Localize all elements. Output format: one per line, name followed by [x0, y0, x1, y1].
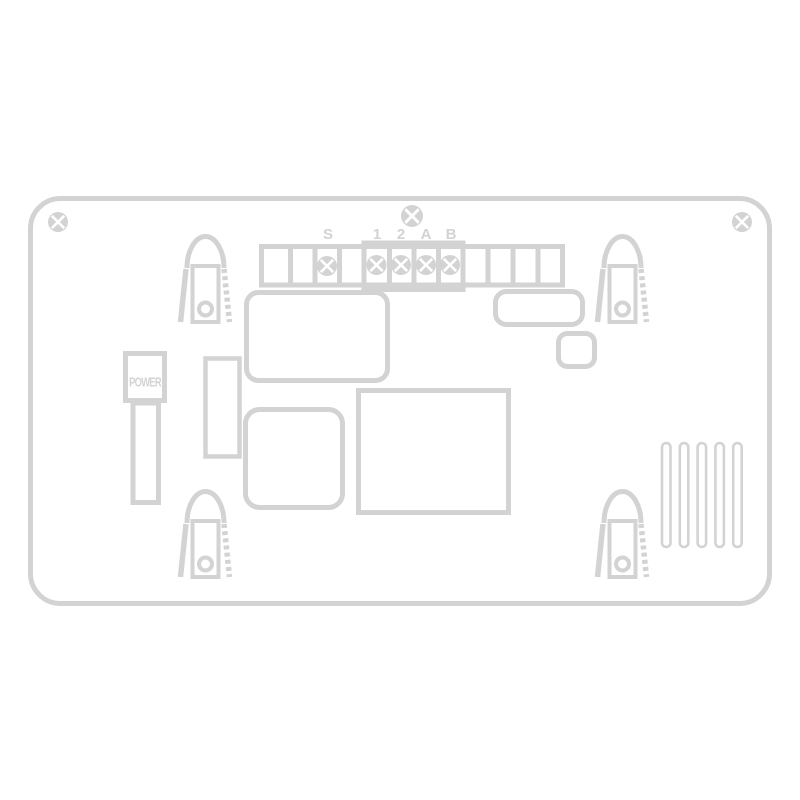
- cable-clip-top-left: [181, 237, 230, 323]
- terminal-label-2: 2: [397, 226, 405, 243]
- component-box-main-module: [359, 391, 509, 513]
- backplate-diagram: S 1 2 A B POWER: [0, 0, 800, 800]
- component-box-small-bottom: [246, 410, 343, 508]
- cable-clip-bottom-left: [181, 492, 230, 578]
- component-box-large-top: [247, 293, 388, 381]
- terminal-label-b: B: [446, 226, 457, 243]
- power-label: POWER: [129, 376, 161, 390]
- component-box-vertical: [206, 359, 240, 457]
- power-connector: POWER: [126, 354, 165, 503]
- terminal-screw-icon-b: [440, 255, 460, 275]
- fin-slot-2: [680, 443, 689, 547]
- terminal-label-s: S: [323, 226, 333, 243]
- terminal-label-a: A: [421, 226, 432, 243]
- terminal-screw-icon-1: [367, 255, 387, 275]
- terminal-screw-icon-s: [317, 256, 337, 276]
- fin-slot-4: [715, 443, 724, 547]
- fin-slot-3: [698, 443, 707, 547]
- fin-slot-1: [662, 443, 671, 547]
- mounting-screw-icon-top-right: [732, 212, 752, 232]
- component-box-small-square: [559, 334, 595, 367]
- power-connector-stem: [133, 403, 159, 503]
- diagram-canvas: S 1 2 A B POWER: [0, 0, 800, 800]
- component-box-wide-right: [496, 292, 583, 325]
- terminal-screw-icon-a: [416, 255, 436, 275]
- cable-clip-bottom-right: [598, 492, 647, 578]
- terminal-screw-icon-2: [391, 255, 411, 275]
- terminal-label-1: 1: [373, 226, 381, 243]
- cable-clip-top-right: [598, 237, 647, 323]
- terminal-block: [262, 243, 563, 290]
- mounting-screw-icon-top-left: [48, 212, 68, 232]
- fin-slot-5: [733, 443, 742, 547]
- heatsink-fins: [662, 443, 742, 547]
- mounting-screw-icon-top-center: [401, 205, 423, 227]
